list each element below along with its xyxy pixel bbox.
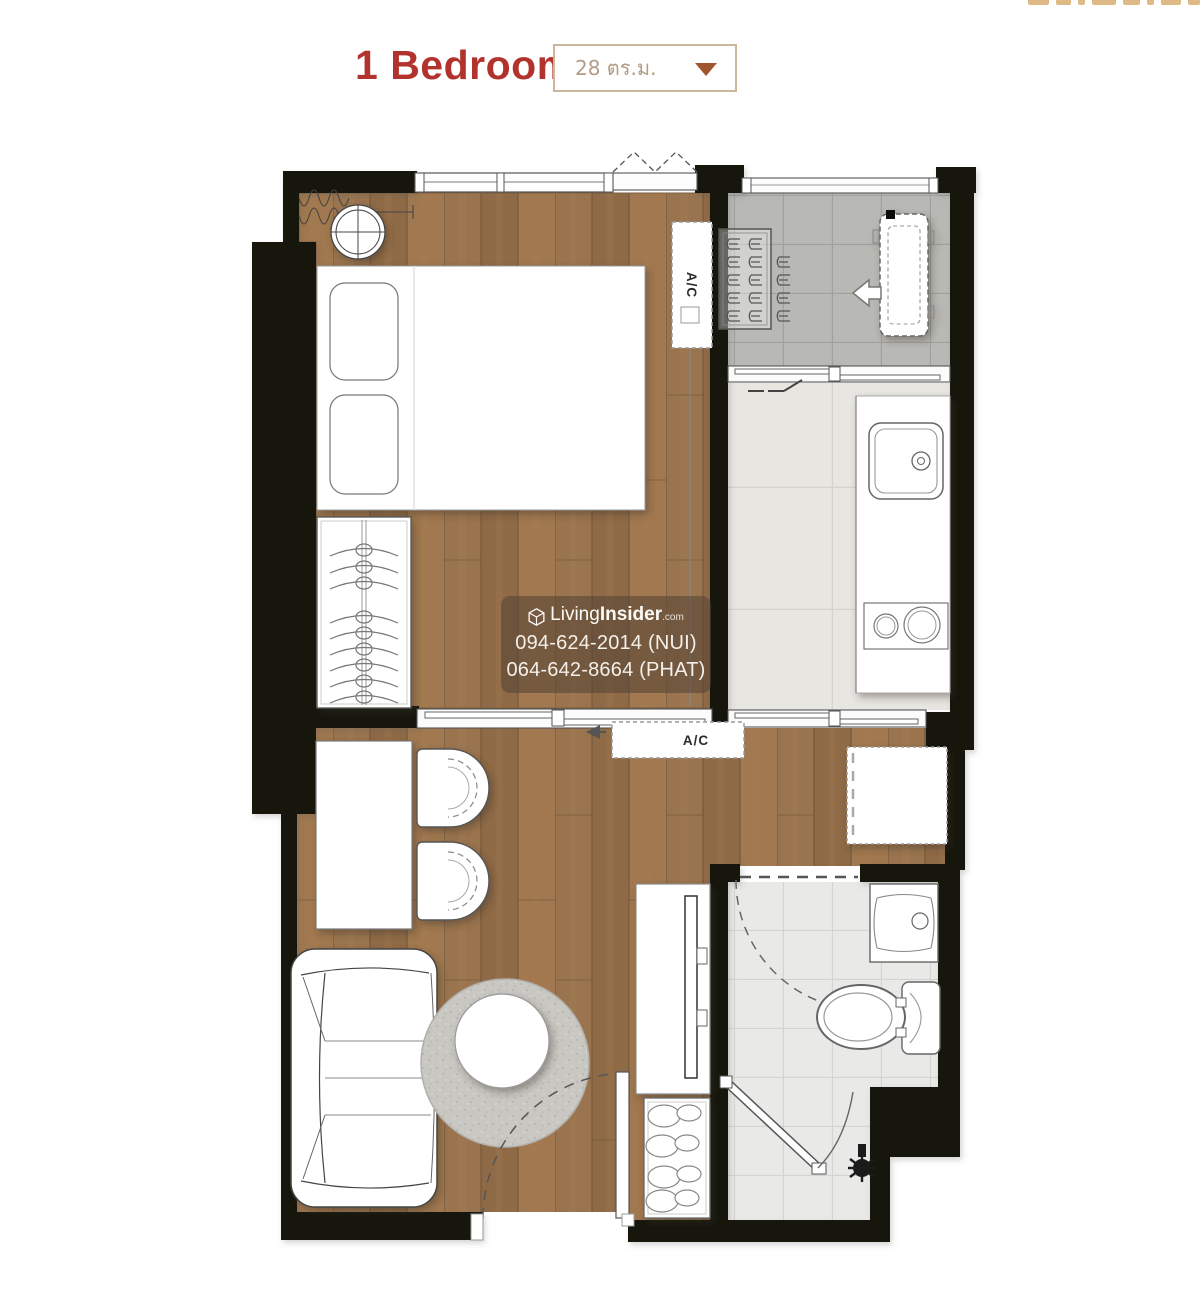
door-hinge [886, 210, 895, 219]
shoe-cabinet [644, 1098, 710, 1218]
kitchen-counter [856, 396, 950, 693]
casement-window [613, 152, 697, 190]
entrance-kitchen-sliding-door [728, 366, 950, 382]
tv-console [636, 884, 710, 1094]
door-leaf [616, 1072, 629, 1218]
brand-suffix: Insider [600, 604, 662, 625]
pillow [330, 395, 398, 494]
faucet-icon [912, 913, 928, 929]
wardrobe-closet [317, 517, 411, 708]
ac-label: A/C [684, 272, 699, 298]
structural-column [252, 242, 316, 814]
watermark-phone-2: 064-642-8664 (PHAT) [501, 657, 711, 684]
watermark: LivingInsider.com 094-624-2014 (NUI) 064… [501, 596, 711, 693]
bed [317, 266, 645, 510]
chair [417, 749, 489, 827]
kitchen-bottom-sliding-door [728, 710, 926, 727]
tv [685, 896, 697, 1078]
entrance-top-window [742, 178, 938, 193]
bathroom-sink [870, 884, 938, 962]
dining-cabinet [847, 747, 947, 844]
coffee-table [455, 994, 549, 1088]
watermark-phone-1: 094-624-2014 (NUI) [501, 630, 711, 657]
desk [316, 741, 412, 929]
bedroom-window [415, 173, 613, 192]
bedside-table [331, 205, 385, 259]
watermark-brand: LivingInsider.com [501, 603, 711, 630]
toilet [817, 982, 940, 1054]
cube-logo-icon [528, 608, 545, 626]
brand-domain: .com [662, 612, 684, 623]
page: 1 Bedroom 28 ตร.ม. [0, 0, 1200, 1295]
chair [417, 842, 489, 920]
kitchen-sink [869, 423, 943, 499]
ac-label: A/C [683, 733, 709, 748]
pillow [330, 283, 398, 380]
sofa [291, 949, 437, 1207]
brand-prefix: Living [550, 604, 600, 625]
faucet-icon [912, 452, 930, 470]
stove [864, 603, 948, 649]
entrance-door [873, 210, 934, 336]
